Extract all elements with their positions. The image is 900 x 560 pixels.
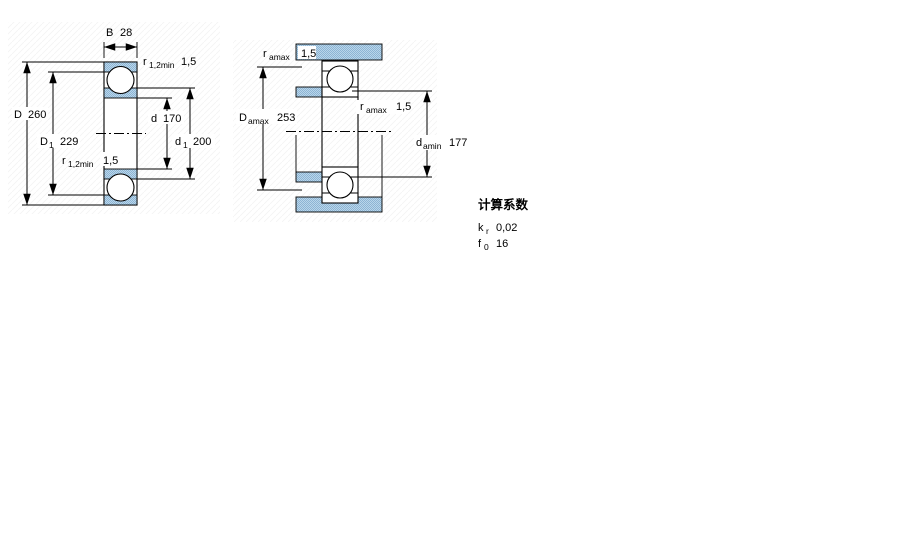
- label-B-symbol: B: [106, 27, 113, 39]
- factor-kr-subscript: r: [486, 226, 489, 236]
- factor-f0-value: 16: [496, 238, 508, 250]
- label-r-top-symbol: r: [143, 56, 147, 68]
- label-ra-mid-value: 1,5: [396, 101, 411, 113]
- label-da-symbol: d: [416, 137, 422, 149]
- label-r-bottom-subscript: 1,2min: [68, 159, 94, 169]
- label-B-value: 28: [120, 27, 132, 39]
- factor-f0-subscript: 0: [484, 242, 489, 252]
- label-d-symbol: d: [151, 113, 157, 125]
- label-D1-subscript: 1: [49, 140, 54, 150]
- factor-kr-symbol: k: [478, 222, 484, 234]
- calculation-factors-block: 计算系数 k r 0,02 f 0 16: [478, 197, 529, 252]
- factor-f0-symbol: f: [478, 238, 482, 250]
- label-r-bottom-value: 1,5: [103, 155, 118, 167]
- ball-bottom-right-figure: [327, 172, 353, 198]
- label-d1-symbol: d: [175, 136, 181, 148]
- label-d1-subscript: 1: [183, 140, 188, 150]
- technical-drawing-canvas: B 28 r 1,2min 1,5 D 260 D 1 229 r 1,2min…: [0, 0, 900, 560]
- label-D-symbol: D: [14, 109, 22, 121]
- label-d1-value: 200: [193, 136, 211, 148]
- ball-top-right-figure: [327, 66, 353, 92]
- label-da-subscript: amin: [423, 141, 442, 151]
- label-r-bottom-symbol: r: [62, 155, 66, 167]
- shaft-shoulder-bottom: [296, 172, 322, 182]
- label-r-top-value: 1,5: [181, 56, 196, 68]
- label-r-top-subscript: 1,2min: [149, 60, 175, 70]
- label-Da-subscript: amax: [248, 116, 270, 126]
- label-ra-top-symbol: r: [263, 48, 267, 60]
- factor-kr-value: 0,02: [496, 222, 517, 234]
- label-Da-symbol: D: [239, 112, 247, 124]
- label-Da-value: 253: [277, 112, 295, 124]
- label-d-value: 170: [163, 113, 181, 125]
- label-D1-value: 229: [60, 136, 78, 148]
- label-D-value: 260: [28, 109, 46, 121]
- shaft-shoulder-top: [296, 87, 322, 97]
- bearing-drawing-page: B 28 r 1,2min 1,5 D 260 D 1 229 r 1,2min…: [0, 0, 900, 560]
- label-ra-top-subscript: amax: [269, 52, 291, 62]
- ball-top: [107, 67, 134, 94]
- label-da-value: 177: [449, 137, 467, 149]
- figure-bearing-section: B 28 r 1,2min 1,5 D 260 D 1 229 r 1,2min…: [8, 22, 220, 214]
- label-ra-mid-symbol: r: [360, 101, 364, 113]
- label-ra-top-value: 1,5: [301, 48, 316, 60]
- figure-bearing-mounted: r amax 1,5 D amax 253 r amax 1,5 d amin …: [233, 40, 467, 222]
- label-ra-mid-subscript: amax: [366, 105, 388, 115]
- factors-title: 计算系数: [478, 197, 529, 212]
- ball-bottom: [107, 174, 134, 201]
- label-D1-symbol: D: [40, 136, 48, 148]
